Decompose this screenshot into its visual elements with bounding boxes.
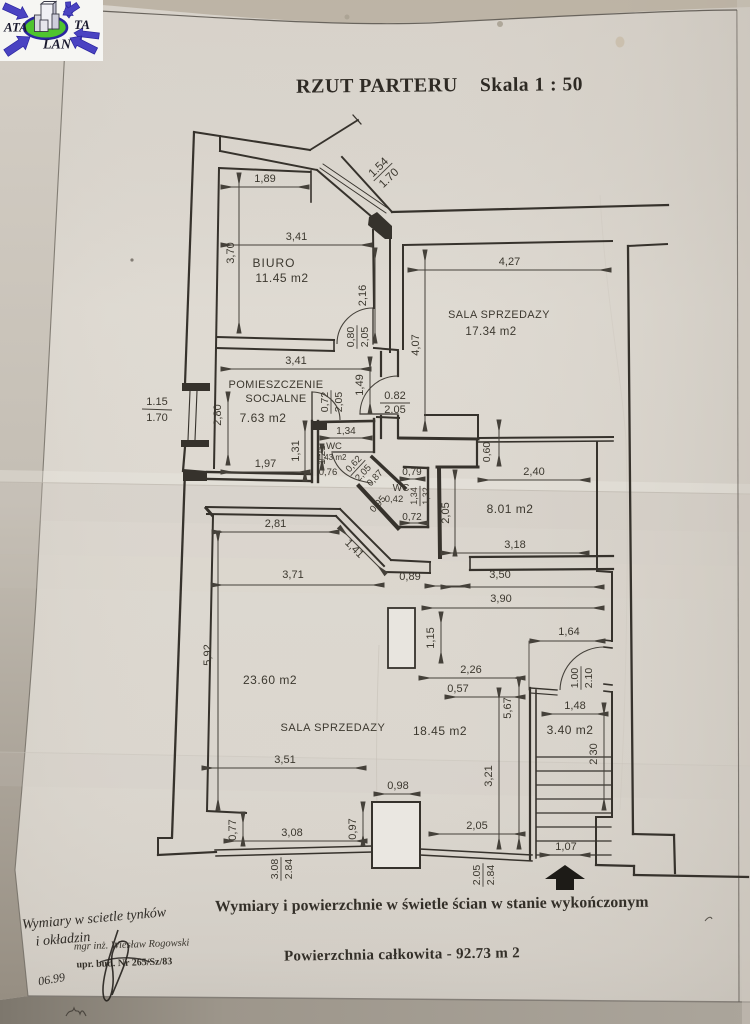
svg-text:POMIESZCZENIE: POMIESZCZENIE — [228, 379, 323, 391]
svg-text:1,89: 1,89 — [254, 173, 275, 185]
svg-text:2.10: 2.10 — [583, 668, 595, 689]
svg-text:18.45 m2: 18.45 m2 — [413, 724, 467, 738]
svg-text:1,48: 1,48 — [564, 700, 585, 712]
svg-text:3,18: 3,18 — [504, 539, 525, 551]
svg-text:3,08: 3,08 — [281, 827, 302, 839]
svg-text:Skala 1 : 50: Skala 1 : 50 — [480, 74, 583, 96]
svg-text:2.84: 2.84 — [485, 865, 497, 886]
svg-text:SALA SPRZEDAZY: SALA SPRZEDAZY — [281, 722, 386, 734]
svg-text:2,05: 2,05 — [440, 502, 452, 523]
svg-text:1,64: 1,64 — [558, 626, 579, 638]
svg-text:1,31: 1,31 — [290, 440, 302, 461]
svg-text:23.60 m2: 23.60 m2 — [243, 673, 297, 687]
svg-text:3,41: 3,41 — [285, 355, 306, 367]
svg-text:1,49: 1,49 — [354, 374, 366, 395]
svg-text:2,30: 2,30 — [588, 743, 600, 764]
svg-text:11.45 m2: 11.45 m2 — [255, 271, 308, 285]
svg-text:1.70: 1.70 — [146, 412, 167, 424]
svg-text:1,34: 1,34 — [409, 487, 419, 505]
svg-text:SOCJALNE: SOCJALNE — [245, 393, 306, 405]
svg-text:7.63 m2: 7.63 m2 — [240, 411, 287, 425]
svg-text:5,67: 5,67 — [502, 697, 514, 718]
svg-text:1,34: 1,34 — [336, 426, 356, 437]
svg-text:2,40: 2,40 — [523, 466, 544, 478]
svg-text:4,07: 4,07 — [410, 334, 422, 355]
svg-text:2,16: 2,16 — [357, 285, 369, 306]
svg-text:0,77: 0,77 — [227, 819, 239, 840]
svg-text:3,70: 3,70 — [225, 242, 237, 263]
svg-text:0,97: 0,97 — [347, 818, 359, 839]
svg-text:3,90: 3,90 — [490, 593, 511, 605]
svg-text:BIURO: BIURO — [252, 256, 295, 270]
svg-text:0,60: 0,60 — [481, 442, 493, 463]
svg-text:3.08: 3.08 — [269, 859, 281, 880]
svg-text:1,97: 1,97 — [255, 458, 276, 470]
svg-text:2,80: 2,80 — [212, 404, 224, 425]
svg-text:Powierzchnia całkowita - 92.73: Powierzchnia całkowita - 92.73 m 2 — [284, 945, 520, 964]
svg-text:1,15: 1,15 — [425, 627, 437, 648]
svg-text:0,79: 0,79 — [402, 467, 422, 478]
svg-text:2,81: 2,81 — [265, 518, 286, 530]
svg-text:2,26: 2,26 — [460, 664, 481, 676]
svg-text:0.82: 0.82 — [384, 390, 405, 402]
svg-text:1,07: 1,07 — [555, 841, 576, 853]
svg-text:3,21: 3,21 — [483, 765, 495, 786]
svg-text:ATA: ATA — [3, 20, 28, 35]
svg-text:0,42: 0,42 — [385, 494, 404, 505]
svg-text:RZUT PARTERU: RZUT PARTERU — [296, 74, 458, 97]
svg-text:1,21: 1,21 — [317, 445, 328, 465]
svg-text:5,92: 5,92 — [202, 644, 214, 665]
svg-text:0,72: 0,72 — [402, 512, 422, 523]
svg-text:2.05: 2.05 — [471, 865, 483, 886]
svg-text:2,05: 2,05 — [333, 392, 345, 413]
svg-text:1.15: 1.15 — [146, 396, 167, 408]
svg-text:3,41: 3,41 — [286, 231, 307, 243]
svg-text:8.01 m2: 8.01 m2 — [487, 502, 534, 516]
svg-text:WC: WC — [326, 441, 342, 452]
svg-text:2.05: 2.05 — [384, 404, 405, 416]
svg-text:1,32: 1,32 — [421, 487, 431, 505]
svg-text:0,80: 0,80 — [345, 327, 357, 348]
svg-text:2,05: 2,05 — [359, 327, 371, 348]
svg-text:TA: TA — [74, 17, 90, 32]
svg-text:SALA SPRZEDAZY: SALA SPRZEDAZY — [448, 309, 550, 321]
svg-text:WC: WC — [393, 483, 410, 494]
svg-text:LAN: LAN — [42, 38, 72, 53]
svg-text:1.00: 1.00 — [569, 668, 581, 689]
svg-text:0,72: 0,72 — [319, 392, 331, 413]
svg-text:2,05: 2,05 — [466, 820, 487, 832]
svg-text:3,50: 3,50 — [489, 569, 510, 581]
svg-text:2.84: 2.84 — [283, 859, 295, 880]
svg-text:0,57: 0,57 — [447, 683, 468, 695]
svg-text:3,71: 3,71 — [282, 569, 303, 581]
svg-text:0,89: 0,89 — [399, 571, 420, 583]
svg-text:3.40 m2: 3.40 m2 — [547, 723, 594, 737]
svg-text:17.34 m2: 17.34 m2 — [465, 326, 516, 338]
svg-text:3,51: 3,51 — [274, 754, 295, 766]
svg-text:0,98: 0,98 — [387, 780, 408, 792]
svg-text:4,27: 4,27 — [499, 256, 520, 268]
